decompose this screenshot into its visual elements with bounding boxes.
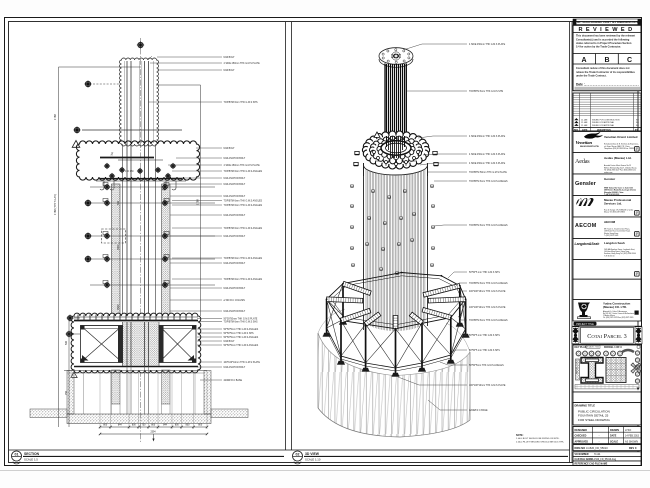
svg-text:100*100*10mm THK G.M.S PLATE: 100*100*10mm THK G.M.S PLATE xyxy=(469,384,506,387)
svg-text:ISSUED FOR APPROVAL: ISSUED FOR APPROVAL xyxy=(592,121,614,124)
svg-text:01: 01 xyxy=(15,452,19,456)
svg-text:Telephone: (853) 8118 8118 Fax: Telephone: (853) 8118 8118 Fax: 2888 888… xyxy=(604,148,637,150)
svg-text:TOP/BTM 6mm THK G.M.S SHS: TOP/BTM 6mm THK G.M.S SHS xyxy=(224,322,259,324)
svg-text:02: 02 xyxy=(296,452,300,456)
svg-text:aedas.com: aedas.com xyxy=(604,172,613,174)
svg-text:A: A xyxy=(581,57,586,64)
svg-text:ø 500 R.C COLUMN: ø 500 R.C COLUMN xyxy=(224,300,246,302)
svg-text:REV C: REV C xyxy=(629,447,637,450)
svg-text:H-124: H-124 xyxy=(594,454,601,456)
svg-text:TOP/BTM 6mm THK G.M.S ANGLES: TOP/BTM 6mm THK G.M.S ANGLES xyxy=(224,200,263,203)
svg-text:AЕCOM: AЕCOM xyxy=(575,223,597,229)
svg-text:3D VIEW: 3D VIEW xyxy=(305,452,320,456)
svg-text:Gensler: Gensler xyxy=(604,177,616,181)
svg-text:ISSUED FOR APPROVAL: ISSUED FOR APPROVAL xyxy=(592,124,614,127)
svg-text:C: C xyxy=(627,57,632,64)
svg-text:M16 ANCHOR BOLT: M16 ANCHOR BOLT xyxy=(224,195,246,198)
svg-text:Macau Tel: (853) 2871 8855: Macau Tel: (853) 2871 8855 xyxy=(604,212,625,214)
svg-text:DWG NO: DWG NO xyxy=(575,447,586,450)
svg-text:TOP/BTM 6mm THK G.M.S ANGLES: TOP/BTM 6mm THK G.M.S ANGLES xyxy=(469,180,508,183)
svg-text:50*50*5mm THK G.M.S SHS: 50*50*5mm THK G.M.S SHS xyxy=(224,333,255,335)
svg-text:M16 ANCHOR BOLT: M16 ANCHOR BOLT xyxy=(224,214,246,217)
svg-text:Gensler: Gensler xyxy=(575,181,597,187)
svg-text:M16 ANCHOR BOLT: M16 ANCHOR BOLT xyxy=(224,262,246,265)
svg-text:SCALE 1:10: SCALE 1:10 xyxy=(305,458,321,462)
svg-text:M16 ANCHOR BOLT: M16 ANCHOR BOLT xyxy=(224,310,246,313)
svg-text:ISSUED FOR CONSTRUCTION: ISSUED FOR CONSTRUCTION xyxy=(592,119,620,121)
svg-text:Aedas (Macau) Ltd.: Aedas (Macau) Ltd. xyxy=(604,156,632,160)
svg-text:50*50*5 mm THK G.M.S SHS: 50*50*5 mm THK G.M.S SHS xyxy=(469,350,500,352)
svg-text:This document has been reviewe: This document has been reviewed by the r… xyxy=(576,35,635,38)
svg-text:12 JAN: 12 JAN xyxy=(581,124,588,127)
svg-text:SCALE 1:5: SCALE 1:5 xyxy=(24,458,38,462)
svg-text:REV: REV xyxy=(574,129,579,131)
svg-text:Consultant review of this: Consultant review of this document does … xyxy=(576,67,630,70)
svg-text:DESCRIPTION: DESCRIPTION xyxy=(597,129,611,131)
svg-text:TOP/BTM 50mm THK G.M.S PLATE: TOP/BTM 50mm THK G.M.S PLATE xyxy=(469,171,507,174)
svg-text:3500: 3500 xyxy=(117,244,120,250)
svg-text:DATE: DATE xyxy=(610,435,617,438)
svg-text:50*50*5mm THK G.M.S ANGLES: 50*50*5mm THK G.M.S ANGLES xyxy=(224,344,259,347)
svg-text:TOP/BTM 6mm THK G.M.S ANGLES: TOP/BTM 6mm THK G.M.S ANGLES xyxy=(224,170,263,173)
svg-text:4 SIDE 450mm THK G.M.S PLATE: 4 SIDE 450mm THK G.M.S PLATE xyxy=(469,135,506,138)
svg-text:5.4 for action by the Trade Co: 5.4 for action by the Trade Contractor. xyxy=(576,46,621,49)
svg-text:REFERENCE CAD FILE NAME: REFERENCE CAD FILE NAME xyxy=(575,462,608,465)
svg-text:CAD FILE NAME: CAD FILE NAME xyxy=(575,458,593,461)
svg-text:M16 BOLT: M16 BOLT xyxy=(224,57,236,59)
svg-text:(Macau) CO. LTD.: (Macau) CO. LTD. xyxy=(603,305,627,309)
svg-text:500: 500 xyxy=(65,340,68,345)
svg-text:DO NOT SCALE DRAWING. VERIFY A: DO NOT SCALE DRAWING. VERIFY ALL DIMENSI… xyxy=(573,21,642,24)
svg-text:FOR STEEL DRAWING: FOR STEEL DRAWING xyxy=(578,418,610,422)
svg-text:under the Trade Contract.: under the Trade Contract. xyxy=(576,75,607,78)
svg-text:PARCEL 1 OF 3: PARCEL 1 OF 3 xyxy=(604,346,622,349)
svg-text:T: (852) 3922 9000: T: (852) 3922 9000 xyxy=(604,235,618,237)
svg-text:PARCEL 1 OF 3: PARCEL 1 OF 3 xyxy=(576,360,579,374)
svg-text:KEY PLAN: KEY PLAN xyxy=(575,346,587,349)
svg-text:14 FEB 2015: 14 FEB 2015 xyxy=(625,435,640,438)
svg-text:750: 750 xyxy=(65,390,68,395)
svg-text:3-1520_FD_55010: 3-1520_FD_55010 xyxy=(586,446,608,450)
svg-text:4200Ø R.C BASE: 4200Ø R.C BASE xyxy=(469,409,488,412)
svg-text:TOP/BTM 6mm THK G.M.S ANGLES: TOP/BTM 6mm THK G.M.S ANGLES xyxy=(224,278,263,281)
svg-text:TOP/BTM 6mm THK G.M.S SHS: TOP/BTM 6mm THK G.M.S SHS xyxy=(469,91,504,93)
svg-text:NOTE:: NOTE: xyxy=(516,434,524,437)
svg-text:-: - xyxy=(599,435,600,438)
svg-text:50*50*5 mm THK G.M.S SHS: 50*50*5 mm THK G.M.S SHS xyxy=(469,272,500,274)
svg-text:1788: 1788 xyxy=(196,199,200,205)
svg-text:1788 (TYP 5 LAY): 1788 (TYP 5 LAY) xyxy=(53,194,57,215)
svg-text:4 SIDE 450mm THK G.M.S PLATE: 4 SIDE 450mm THK G.M.S PLATE xyxy=(224,164,261,167)
svg-text:DRAWING TITLE: DRAWING TITLE xyxy=(575,404,596,408)
svg-text:DESIGNED: DESIGNED xyxy=(575,429,588,432)
svg-text:50*50*50mm THK G.M.S PLATE: 50*50*50mm THK G.M.S PLATE xyxy=(224,318,258,321)
svg-text:SECTION: SECTION xyxy=(24,452,40,456)
svg-text:TOP/BTM 6mm THK G.M.S ANGLES: TOP/BTM 6mm THK G.M.S ANGLES xyxy=(224,204,263,207)
svg-text:50*50*5 mm THK G.M.S SHS: 50*50*5 mm THK G.M.S SHS xyxy=(469,335,500,337)
svg-text:REVIEWED: REVIEWED xyxy=(578,27,635,33)
svg-text:4 SIDE 450mm THK G.M.S PLATE: 4 SIDE 450mm THK G.M.S PLATE xyxy=(469,153,506,156)
svg-text:50*50*5mm THK G.M.S ANGLES: 50*50*5mm THK G.M.S ANGLES xyxy=(224,336,259,339)
svg-text:TOP/BTM 6mm THK G.M.S SHS: TOP/BTM 6mm THK G.M.S SHS xyxy=(224,102,259,104)
svg-text:Langdon Seah: Langdon Seah xyxy=(604,241,625,245)
svg-text:500: 500 xyxy=(117,200,120,205)
svg-text:Date :: Date : xyxy=(576,82,585,86)
svg-text:-: - xyxy=(599,440,600,443)
svg-text:3-1520_FD_55010.dwg: 3-1520_FD_55010.dwg xyxy=(592,459,617,461)
svg-text:Tel: (853) 2875 3323 Fax: (85: Tel: (853) 2875 3323 Fax: (853) 2875 332… xyxy=(603,317,633,319)
svg-text:400*200*16mm THK G.M.S PLATE: 400*200*16mm THK G.M.S PLATE xyxy=(469,290,506,293)
svg-text:M16 ANCHOR BOLT: M16 ANCHOR BOLT xyxy=(224,157,246,160)
svg-text:12 JAN: 12 JAN xyxy=(581,118,588,121)
svg-text:LYKO: LYKO xyxy=(625,429,631,432)
svg-text:DRAWN: DRAWN xyxy=(610,429,619,432)
svg-text:100*100*10mm THK G.M.S PLATE: 100*100*10mm THK G.M.S PLATE xyxy=(224,361,261,364)
svg-text:M16 BOLT: M16 BOLT xyxy=(224,148,236,150)
svg-text:4 SIDE 450mm THK G.M.S PLATE: 4 SIDE 450mm THK G.M.S PLATE xyxy=(469,43,506,46)
svg-text:TOP/BTM 6mm THK G.M.S ANGLES: TOP/BTM 6mm THK G.M.S ANGLES xyxy=(224,227,263,230)
svg-text:status referred to in Pro: status referred to in Project Procedure … xyxy=(576,42,632,45)
svg-text:AECOM: AECOM xyxy=(604,220,616,224)
svg-text:TOP/BTM 6mm THK G.M.S ANGLES: TOP/BTM 6mm THK G.M.S ANGLES xyxy=(224,257,263,260)
svg-text:APPROVED: APPROVED xyxy=(575,440,589,443)
svg-text:M16 ANCHOR BOLT: M16 ANCHOR BOLT xyxy=(224,177,246,180)
svg-text:2594: 2594 xyxy=(150,432,156,434)
svg-text:TOP/BTM 6mm THK G.M.S ANGLES: TOP/BTM 6mm THK G.M.S ANGLES xyxy=(469,282,508,285)
svg-text:Services Ltd.: Services Ltd. xyxy=(604,201,622,205)
svg-text:2. ALL FILLET WELDED SHOULD BE: 2. ALL FILLET WELDED SHOULD BE 6mm THK. xyxy=(516,440,564,443)
svg-text:B: B xyxy=(604,57,609,64)
svg-text:M16 ANCHOR BOLT: M16 ANCHOR BOLT xyxy=(224,287,246,290)
svg-text:VO NUMBER: VO NUMBER xyxy=(575,454,589,456)
svg-text:4 SIDE 450mm THK G.M.S PLATE: 4 SIDE 450mm THK G.M.S PLATE xyxy=(224,62,261,65)
svg-text:100*100*10mm THK G.M.S PLATE: 100*100*10mm THK G.M.S PLATE xyxy=(469,306,506,309)
svg-text:Venetian Orient Limited: Venetian Orient Limited xyxy=(604,135,638,139)
svg-text:T 28 30 35 00: T 28 30 35 00 xyxy=(604,255,614,257)
svg-text:50*50*5mm THK G.M.S ANGLES: 50*50*5mm THK G.M.S ANGLES xyxy=(469,364,504,367)
svg-text:CHECKED: CHECKED xyxy=(575,435,587,438)
svg-text:150 150: 150 150 xyxy=(125,170,134,173)
svg-text:12 JAN: 12 JAN xyxy=(581,121,588,124)
svg-text:SCALE 1:7500: SCALE 1:7500 xyxy=(587,346,599,349)
svg-text:Aedas: Aedas xyxy=(575,158,590,165)
svg-text:3500: 3500 xyxy=(117,304,120,310)
svg-text:M16 ANCHOR BOLT: M16 ANCHOR BOLT xyxy=(224,235,246,238)
svg-text:TOP/BTM 6mm THK G.M.S ANGLES: TOP/BTM 6mm THK G.M.S ANGLES xyxy=(469,319,508,322)
svg-text:TOP/BTM 6mm THK G.M.S ANGLES: TOP/BTM 6mm THK G.M.S ANGLES xyxy=(469,224,508,227)
svg-text:1788: 1788 xyxy=(53,114,57,120)
svg-text:Langdon&Seah: Langdon&Seah xyxy=(575,242,600,246)
svg-text:COTAI PARCEL 3: COTAI PARCEL 3 xyxy=(587,333,626,340)
svg-text:M16 ANCHOR BOLT: M16 ANCHOR BOLT xyxy=(224,366,246,369)
svg-text:AS SHOWN: AS SHOWN xyxy=(625,440,638,443)
svg-text:SCALE: SCALE xyxy=(610,440,619,443)
svg-text:M16 ANCHOR BOLT: M16 ANCHOR BOLT xyxy=(224,183,246,186)
svg-text:50*50*5mm THK G.M.S ANGLES: 50*50*5mm THK G.M.S ANGLES xyxy=(224,328,259,331)
svg-text:relieve the Trade Contracto: relieve the Trade Contractor of its resp… xyxy=(576,71,636,74)
svg-text:Venetian: Venetian xyxy=(576,140,593,145)
svg-text:1. ALL BOLT SHOULD BE FIXING O: 1. ALL BOLT SHOULD BE FIXING ON SITE. xyxy=(516,437,560,440)
svg-text:M16 BOLT: M16 BOLT xyxy=(224,70,236,72)
svg-text:4 SIDE 450mm THK G.M.S PLATE: 4 SIDE 450mm THK G.M.S PLATE xyxy=(469,162,506,165)
svg-text:DATE: DATE xyxy=(582,128,588,131)
svg-text:Consultants(s) and is accor: Consultants(s) and is accorded the follo… xyxy=(576,38,630,41)
svg-text:M16 BOLT: M16 BOLT xyxy=(224,341,236,343)
svg-text:PROJECT TITLE: PROJECT TITLE xyxy=(576,324,594,326)
svg-text:4200Ø R.C BASE: 4200Ø R.C BASE xyxy=(224,379,243,382)
